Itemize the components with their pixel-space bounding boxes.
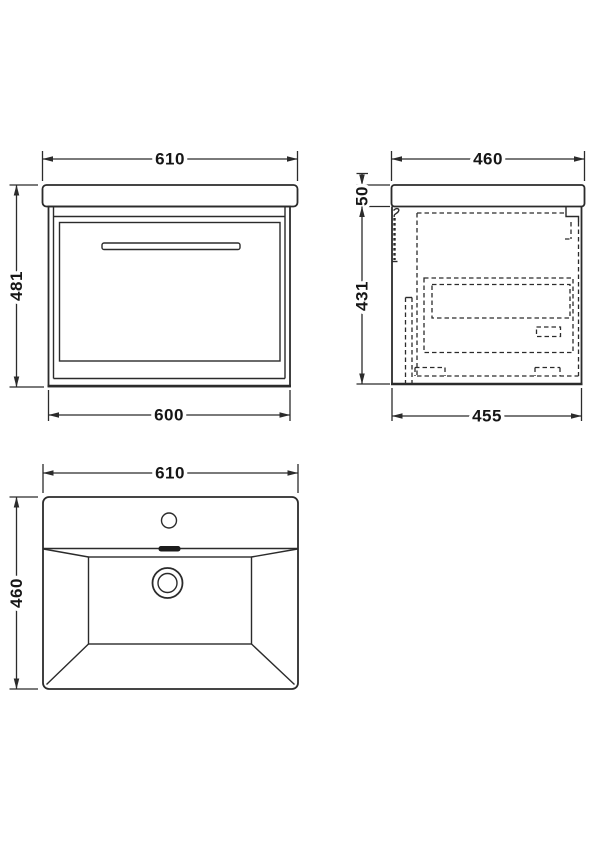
- drawer-front-hidden-edges: [406, 298, 413, 384]
- countertop-front: [43, 185, 298, 207]
- technical-drawing-page: 610 481 600 460: [0, 0, 600, 849]
- carcass-interior-outline: [417, 213, 579, 376]
- frame-outer: [49, 207, 291, 387]
- drawer-side-hidden: [432, 285, 570, 319]
- side-dim-top-depth: 460: [392, 150, 585, 182]
- drawer-box-hidden: [424, 278, 573, 353]
- hidden-lines: [406, 213, 579, 383]
- drain-inner-ring: [158, 574, 177, 593]
- front-dim-bottom-width: 600: [49, 390, 291, 425]
- right-bracket-hidden: [535, 368, 560, 377]
- side-view: 460 50 4: [353, 150, 585, 426]
- dimension-label: 610: [155, 464, 185, 483]
- dimension-label: 460: [473, 150, 503, 169]
- dimension-label: 50: [353, 186, 372, 206]
- plan-dim-width: 610: [43, 464, 298, 494]
- tap-hole: [162, 513, 177, 528]
- bowl-bottom: [89, 557, 252, 644]
- dimension-label: 460: [7, 578, 26, 608]
- drain-outer-ring: [153, 568, 183, 598]
- left-bracket-hidden: [415, 368, 445, 377]
- side-dim-thickness-and-height: 50 431: [353, 174, 391, 385]
- frame-inner: [54, 207, 286, 379]
- basin-plan-view: 610 460: [7, 464, 298, 690]
- bracket-hook: [394, 209, 399, 217]
- front-dim-top-width: 610: [43, 150, 298, 182]
- dimension-label: 455: [472, 407, 502, 426]
- hanging-rail-step: [566, 207, 579, 222]
- dimension-label: 600: [154, 406, 184, 425]
- front-dim-height: 481: [7, 185, 44, 387]
- drawer-runner-hidden: [537, 327, 561, 337]
- front-view: 610 481 600: [7, 150, 298, 425]
- cabinet-sides: [392, 207, 582, 385]
- dimension-label: 610: [155, 150, 185, 169]
- bowl-slope-lines: [44, 549, 298, 685]
- basin-outline: [43, 497, 298, 689]
- countertop-side: [392, 185, 585, 207]
- plan-dim-depth: 460: [7, 497, 38, 689]
- side-dim-bottom-depth: 455: [392, 388, 582, 426]
- dimension-label: 481: [7, 271, 26, 301]
- vanity-dimension-drawing: 610 481 600 460: [0, 0, 600, 849]
- drawer-handle: [102, 243, 240, 250]
- dimension-label: 431: [353, 281, 372, 311]
- overflow-slot: [159, 546, 181, 552]
